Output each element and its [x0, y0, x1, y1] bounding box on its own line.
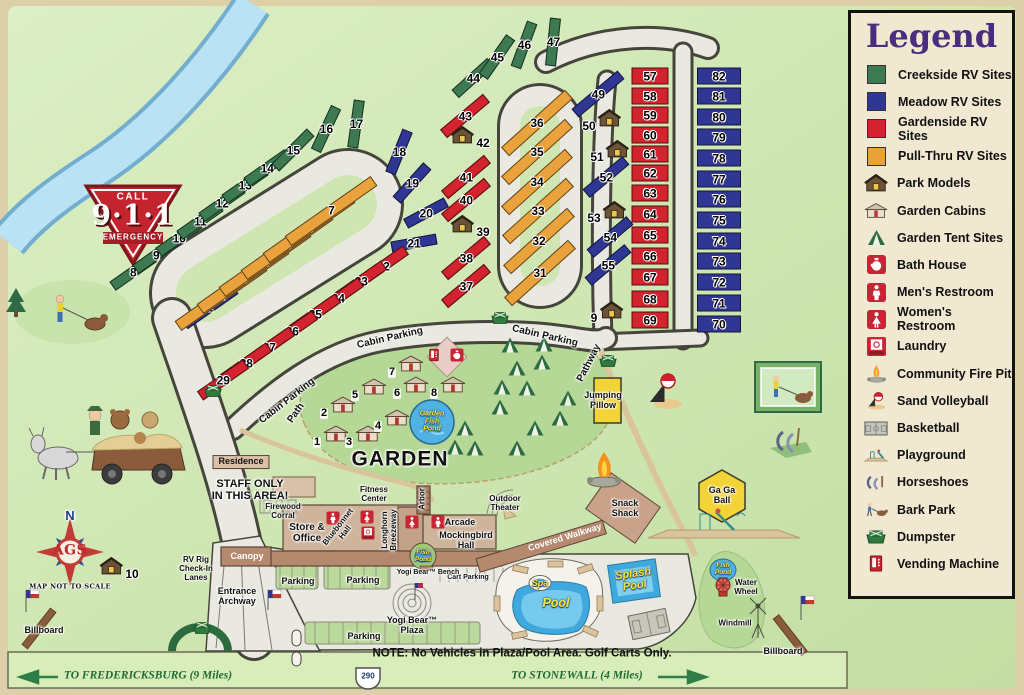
- label-cabin-parking: Cabin Parking: [356, 325, 424, 351]
- garden-tent-sites-icon: [864, 230, 888, 245]
- gardenside-site-69: 69: [632, 312, 669, 329]
- gardenside-site-59: 59: [632, 107, 669, 124]
- community-fire-pit-icon: [864, 364, 888, 383]
- creekside-site-15: 15: [271, 128, 314, 171]
- legend-item-mens-restroom: Men's Restroom: [851, 279, 1012, 306]
- garden-cabin-icon: [384, 408, 410, 432]
- site-number: 35: [530, 145, 543, 159]
- site-number: 74: [712, 234, 725, 248]
- dumpster-icon: [204, 385, 222, 398]
- site-number: 55: [601, 258, 614, 272]
- meadow-site-82: 82: [697, 68, 741, 85]
- legend-item-meadow-rv-sites: Meadow RV Sites: [851, 88, 1012, 115]
- mens-icon: [432, 516, 445, 529]
- legend-item-garden-cabins: Garden Cabins: [851, 197, 1012, 224]
- site-number: 17: [349, 117, 362, 131]
- legend-item-label: Bark Park: [897, 503, 955, 517]
- gardenside-rv-sites-icon: [867, 119, 886, 138]
- garden-cabin-1: 1: [313, 424, 349, 448]
- legend-item-womens-restroom: Women's Restroom: [851, 306, 1012, 333]
- label-water-wheel: Water Wheel: [734, 579, 758, 597]
- mens-restroom-icon: [864, 283, 888, 302]
- cabin-number: 2: [320, 408, 328, 419]
- garden-tent-icon: [552, 411, 569, 426]
- label-canopy: Canopy: [230, 552, 263, 562]
- bath-house-icon: [864, 255, 888, 274]
- label-yogi-bear-bench: Yogi Bear™ Bench: [397, 569, 460, 577]
- label-parking: Parking: [347, 632, 380, 642]
- site-number: 70: [712, 317, 725, 331]
- label-windmill: Windmill: [718, 620, 751, 629]
- legend-item-label: Gardenside RV Sites: [898, 115, 1012, 143]
- park-model-50: 50: [582, 109, 621, 133]
- gardenside-site-64: 64: [632, 206, 669, 223]
- label-map-not-to-scale: MAP NOT TO SCALE: [29, 583, 111, 590]
- garden-tent-icon: [492, 400, 509, 415]
- site-number: 50: [582, 119, 595, 133]
- cabin-number: 7: [388, 367, 396, 378]
- site-number: 82: [712, 69, 725, 83]
- womens-icon: [361, 511, 374, 524]
- site-number: 40: [459, 193, 472, 207]
- site-number: 64: [643, 207, 656, 221]
- dumpster-icon: [864, 530, 888, 544]
- meadow-site-18: 18: [385, 129, 412, 176]
- bark-park-icon: [864, 502, 888, 517]
- park-model-icon: [606, 140, 630, 164]
- site-number: 77: [712, 172, 725, 186]
- garden-tent-icon: [509, 441, 526, 456]
- label-n: N: [65, 509, 74, 523]
- site-number: 53: [587, 211, 600, 225]
- label-spa: Spa: [532, 579, 549, 589]
- site-number: 45: [490, 50, 503, 64]
- womens-icon: [406, 516, 419, 529]
- legend-item-bark-park: Bark Park: [851, 496, 1012, 523]
- label-emergency: EMERGENCY: [103, 234, 164, 243]
- site-number: 15: [286, 143, 299, 157]
- meadow-site-70: 70: [697, 316, 741, 333]
- garden-tent-icon: [467, 441, 484, 456]
- meadow-rv-sites-icon: [867, 92, 886, 111]
- gardenside-site-66: 66: [632, 248, 669, 265]
- legend-item-playground: Playground: [851, 442, 1012, 469]
- garden-tent-icon: [509, 361, 526, 376]
- garden-cabin-4: 4: [374, 408, 410, 432]
- label-mockingbird-hall: Mockingbird Hall: [439, 531, 493, 551]
- site-number: 31: [533, 266, 546, 280]
- site-number: 58: [643, 89, 656, 103]
- park-model-10: 10: [99, 557, 138, 581]
- dumpster-icon: [491, 312, 509, 325]
- dumpster-icon: [599, 355, 617, 368]
- label-snack-shack: Snack Shack: [612, 499, 639, 519]
- garden-tent-icon: [534, 355, 551, 370]
- label-ags: AGS: [53, 543, 87, 558]
- site-number: 51: [590, 150, 603, 164]
- laundry-icon: [362, 527, 375, 540]
- garden-cabin-6: 6: [393, 375, 429, 399]
- legend-item-bath-house: Bath House: [851, 251, 1012, 278]
- legend-item-sand-volleyball: Sand Volleyball: [851, 387, 1012, 414]
- meadow-site-73: 73: [697, 253, 741, 270]
- label-fish-pond: Fish Pond: [415, 549, 431, 563]
- garden-tent-icon: [519, 381, 536, 396]
- label-garden-fish-pond: Garden Fish Pond: [420, 410, 445, 433]
- legend-title: Legend: [851, 17, 1012, 55]
- garden-tent-icon: [494, 380, 511, 395]
- legend-item-label: Dumpster: [897, 530, 955, 544]
- cabin-number: 4: [374, 421, 382, 432]
- park-model-icon: [599, 301, 623, 325]
- basketball-icon: [864, 421, 888, 436]
- park-models-icon: [864, 174, 888, 193]
- legend-item-label: Horseshoes: [897, 475, 969, 489]
- legend-item-label: Sand Volleyball: [897, 394, 988, 408]
- pullthru-site-7: 7: [285, 176, 378, 246]
- vending-icon: [428, 349, 441, 362]
- gardenside-site-67: 67: [632, 269, 669, 286]
- site-number: 37: [459, 279, 472, 293]
- site-number: 59: [643, 108, 656, 122]
- label-9-1-1: 9·1·1: [92, 201, 175, 232]
- label-to-stonewall-4-miles: TO STONEWALL (4 Miles): [511, 670, 643, 683]
- legend-item-basketball: Basketball: [851, 414, 1012, 441]
- legend-item-label: Vending Machine: [897, 557, 999, 571]
- site-number: 81: [712, 89, 725, 103]
- creekside-site-45: 45: [479, 34, 516, 80]
- gardenside-site-57: 57: [632, 68, 669, 85]
- legend-item-label: Meadow RV Sites: [898, 95, 1001, 109]
- legend-item-creekside-rv-sites: Creekside RV Sites: [851, 61, 1012, 88]
- legend-item-label: Men's Restroom: [897, 285, 994, 299]
- park-model-icon: [450, 126, 474, 150]
- label-parking: Parking: [346, 576, 379, 586]
- gardenside-site-61: 61: [632, 146, 669, 163]
- legend-item-label: Bath House: [897, 258, 966, 272]
- label-entrance-archway: Entrance Archway: [218, 587, 257, 607]
- meadow-site-77: 77: [697, 171, 741, 188]
- label-staff-only-in-this-area: STAFF ONLY IN THIS AREA!: [212, 478, 289, 502]
- legend-item-park-models: Park Models: [851, 170, 1012, 197]
- garden-cabin-8: 8: [430, 375, 466, 399]
- legend-item-gardenside-rv-sites: Gardenside RV Sites: [851, 115, 1012, 142]
- garden-cabin-icon: [398, 354, 424, 378]
- legend-item-label: Park Models: [897, 176, 971, 190]
- site-number: 52: [599, 170, 612, 184]
- park-model-icon: [598, 109, 622, 133]
- label-ga-ga-ball: Ga Ga Ball: [709, 486, 736, 506]
- legend-item-laundry: Laundry: [851, 333, 1012, 360]
- park-model-39: 39: [450, 215, 489, 239]
- garden-cabins-icon: [864, 201, 888, 220]
- park-model-icon: [603, 201, 627, 225]
- garden-tent-icon: [527, 421, 544, 436]
- label-yogi-bear-plaza: Yogi Bear™ Plaza: [387, 616, 437, 636]
- campground-map: 8910111213141516174445464711819202149525…: [0, 0, 1024, 695]
- site-number: 72: [712, 275, 725, 289]
- site-number: 16: [319, 122, 332, 136]
- site-number: 57: [643, 69, 656, 83]
- legend-item-dumpster: Dumpster: [851, 523, 1012, 550]
- site-number: 46: [517, 38, 530, 52]
- legend-item-label: Community Fire Pit: [897, 367, 1012, 381]
- gardenside-site-65: 65: [632, 227, 669, 244]
- label-residence: Residence: [212, 455, 269, 469]
- site-number: 39: [476, 225, 489, 239]
- garden-cabin-7: 7: [388, 354, 424, 378]
- label-arbor: Arbor: [419, 488, 428, 510]
- site-number: 9: [591, 311, 598, 325]
- site-number: 68: [643, 292, 656, 306]
- garden-cabin-icon: [361, 377, 387, 401]
- label-arcade: Arcade: [445, 518, 476, 528]
- site-number: 62: [643, 166, 656, 180]
- site-number: 66: [643, 249, 656, 263]
- garden-cabin-icon: [403, 375, 429, 399]
- site-number: 63: [643, 186, 656, 200]
- label-splash-pool: Splash Pool: [614, 566, 653, 595]
- meadow-site-78: 78: [697, 150, 741, 167]
- laundry-icon: [864, 337, 888, 356]
- label-fish-pond: Fish Pond: [715, 562, 731, 576]
- sand-volleyball-icon: [864, 391, 888, 410]
- creekside-rv-sites-icon: [867, 65, 886, 84]
- gardenside-site-63: 63: [632, 185, 669, 202]
- garden-tent-icon: [447, 440, 464, 455]
- site-number: 79: [712, 130, 725, 144]
- site-number: 41: [459, 170, 472, 184]
- cabin-number: 6: [393, 388, 401, 399]
- site-number: 49: [591, 87, 604, 101]
- site-number: 33: [531, 204, 544, 218]
- site-number: 43: [458, 109, 471, 123]
- legend-item-label: Women's Restroom: [897, 305, 1012, 333]
- label-covered-walkway: Covered Walkway: [527, 522, 603, 554]
- playground-icon: [864, 448, 888, 463]
- site-number: 71: [712, 296, 725, 310]
- site-number: 18: [392, 145, 405, 159]
- label-parking: Parking: [281, 577, 314, 587]
- site-number: 61: [643, 147, 656, 161]
- site-number: 47: [546, 35, 559, 49]
- site-number: 76: [712, 192, 725, 206]
- legend-item-vending-machine: Vending Machine: [851, 550, 1012, 577]
- site-number: 75: [712, 213, 725, 227]
- site-number: 67: [643, 270, 656, 284]
- garden-cabin-5: 5: [351, 377, 387, 401]
- site-number: 78: [712, 151, 725, 165]
- meadow-site-74: 74: [697, 233, 741, 250]
- cabin-number: 5: [351, 390, 359, 401]
- legend-item-label: Garden Cabins: [897, 204, 986, 218]
- gardenside-site-58: 58: [632, 88, 669, 105]
- site-number: 36: [530, 116, 543, 130]
- site-number: 73: [712, 254, 725, 268]
- label-fitness-center: Fitness Center: [360, 486, 388, 504]
- meadow-site-80: 80: [697, 109, 741, 126]
- site-number: 34: [530, 175, 543, 189]
- legend-item-garden-tent-sites: Garden Tent Sites: [851, 224, 1012, 251]
- label-billboard: Billboard: [24, 626, 63, 636]
- gardenside-site-62: 62: [632, 165, 669, 182]
- creekside-site-47: 47: [545, 18, 561, 67]
- cabin-number: 3: [345, 437, 353, 448]
- garden-cabin-icon: [440, 375, 466, 399]
- park-model-icon: [99, 557, 123, 581]
- site-number: 65: [643, 228, 656, 242]
- garden-tent-icon: [502, 338, 519, 353]
- legend-item-pull-thru-rv-sites: Pull-Thru RV Sites: [851, 143, 1012, 170]
- cabin-number: 8: [430, 388, 438, 399]
- creekside-site-17: 17: [347, 99, 365, 148]
- site-number: 54: [603, 230, 616, 244]
- cabin-number: 1: [313, 437, 321, 448]
- site-number: 80: [712, 110, 725, 124]
- site-number: 7: [328, 204, 335, 218]
- gardenside-site-68: 68: [632, 291, 669, 308]
- label-jumping-pillow: Jumping Pillow: [584, 391, 622, 411]
- label-note-no-vehicles-in-plaza-pool-a: NOTE: No Vehicles in Plaza/Pool Area. Go…: [372, 648, 671, 661]
- label-290: 290: [361, 673, 374, 682]
- park-model-42: 42: [450, 126, 489, 150]
- label-billboard: Billboard: [763, 647, 802, 657]
- legend-item-label: Garden Tent Sites: [897, 231, 1003, 245]
- meadow-site-19: 19: [393, 162, 432, 204]
- garden-tent-icon: [560, 391, 577, 406]
- site-number: 19: [405, 176, 418, 190]
- site-number: 20: [419, 206, 432, 220]
- label-garden: GARDEN: [351, 447, 448, 470]
- meadow-site-81: 81: [697, 88, 741, 105]
- site-number: 69: [643, 313, 656, 327]
- gardenside-site-60: 60: [632, 127, 669, 144]
- label-longhorn-breezeway: Longhorn Breezeway: [381, 509, 399, 550]
- site-number: 38: [459, 251, 472, 265]
- label-pool: Pool: [542, 597, 569, 611]
- legend-item-label: Pull-Thru RV Sites: [898, 149, 1007, 163]
- legend-item-label: Basketball: [897, 421, 960, 435]
- site-number: 21: [407, 236, 420, 250]
- womens-restroom-icon: [864, 310, 888, 329]
- label-to-fredericksburg-9-miles: TO FREDERICKSBURG (9 Miles): [64, 670, 232, 683]
- bath-icon: [451, 349, 464, 362]
- legend-item-community-fire-pit: Community Fire Pit: [851, 360, 1012, 387]
- site-number: 60: [643, 128, 656, 142]
- park-model-icon: [450, 215, 474, 239]
- meadow-site-72: 72: [697, 274, 741, 291]
- dumpster-icon: [193, 622, 211, 635]
- garden-tent-icon: [457, 421, 474, 436]
- pull-thru-rv-sites-icon: [867, 147, 886, 166]
- legend-item-label: Laundry: [897, 339, 946, 353]
- meadow-site-71: 71: [697, 295, 741, 312]
- label-firewood-corral: Firewood Corral: [265, 503, 301, 521]
- creekside-site-46: 46: [511, 21, 538, 70]
- legend-list: Creekside RV SitesMeadow RV SitesGardens…: [851, 61, 1012, 578]
- meadow-site-76: 76: [697, 191, 741, 208]
- label-outdoor-theater: Outdoor Theater: [489, 495, 521, 513]
- site-number: 42: [476, 136, 489, 150]
- site-number: 10: [125, 567, 138, 581]
- meadow-site-79: 79: [697, 129, 741, 146]
- legend-item-label: Creekside RV Sites: [898, 68, 1012, 82]
- park-model-51: 51: [590, 140, 629, 164]
- vending-machine-icon: [864, 555, 888, 572]
- pullthru-site-31: 31: [504, 240, 576, 306]
- park-model-9: 9: [591, 301, 624, 325]
- legend-panel: Legend Creekside RV SitesMeadow RV Sites…: [848, 10, 1015, 599]
- legend-item-label: Playground: [897, 448, 966, 462]
- park-model-53: 53: [587, 201, 626, 225]
- meadow-site-75: 75: [697, 212, 741, 229]
- label-rv-rig-check-in-lanes: RV Rig Check-In Lanes: [179, 556, 213, 582]
- horseshoes-icon: [864, 474, 888, 491]
- creekside-site-16: 16: [311, 105, 341, 153]
- site-number: 32: [532, 234, 545, 248]
- legend-item-horseshoes: Horseshoes: [851, 469, 1012, 496]
